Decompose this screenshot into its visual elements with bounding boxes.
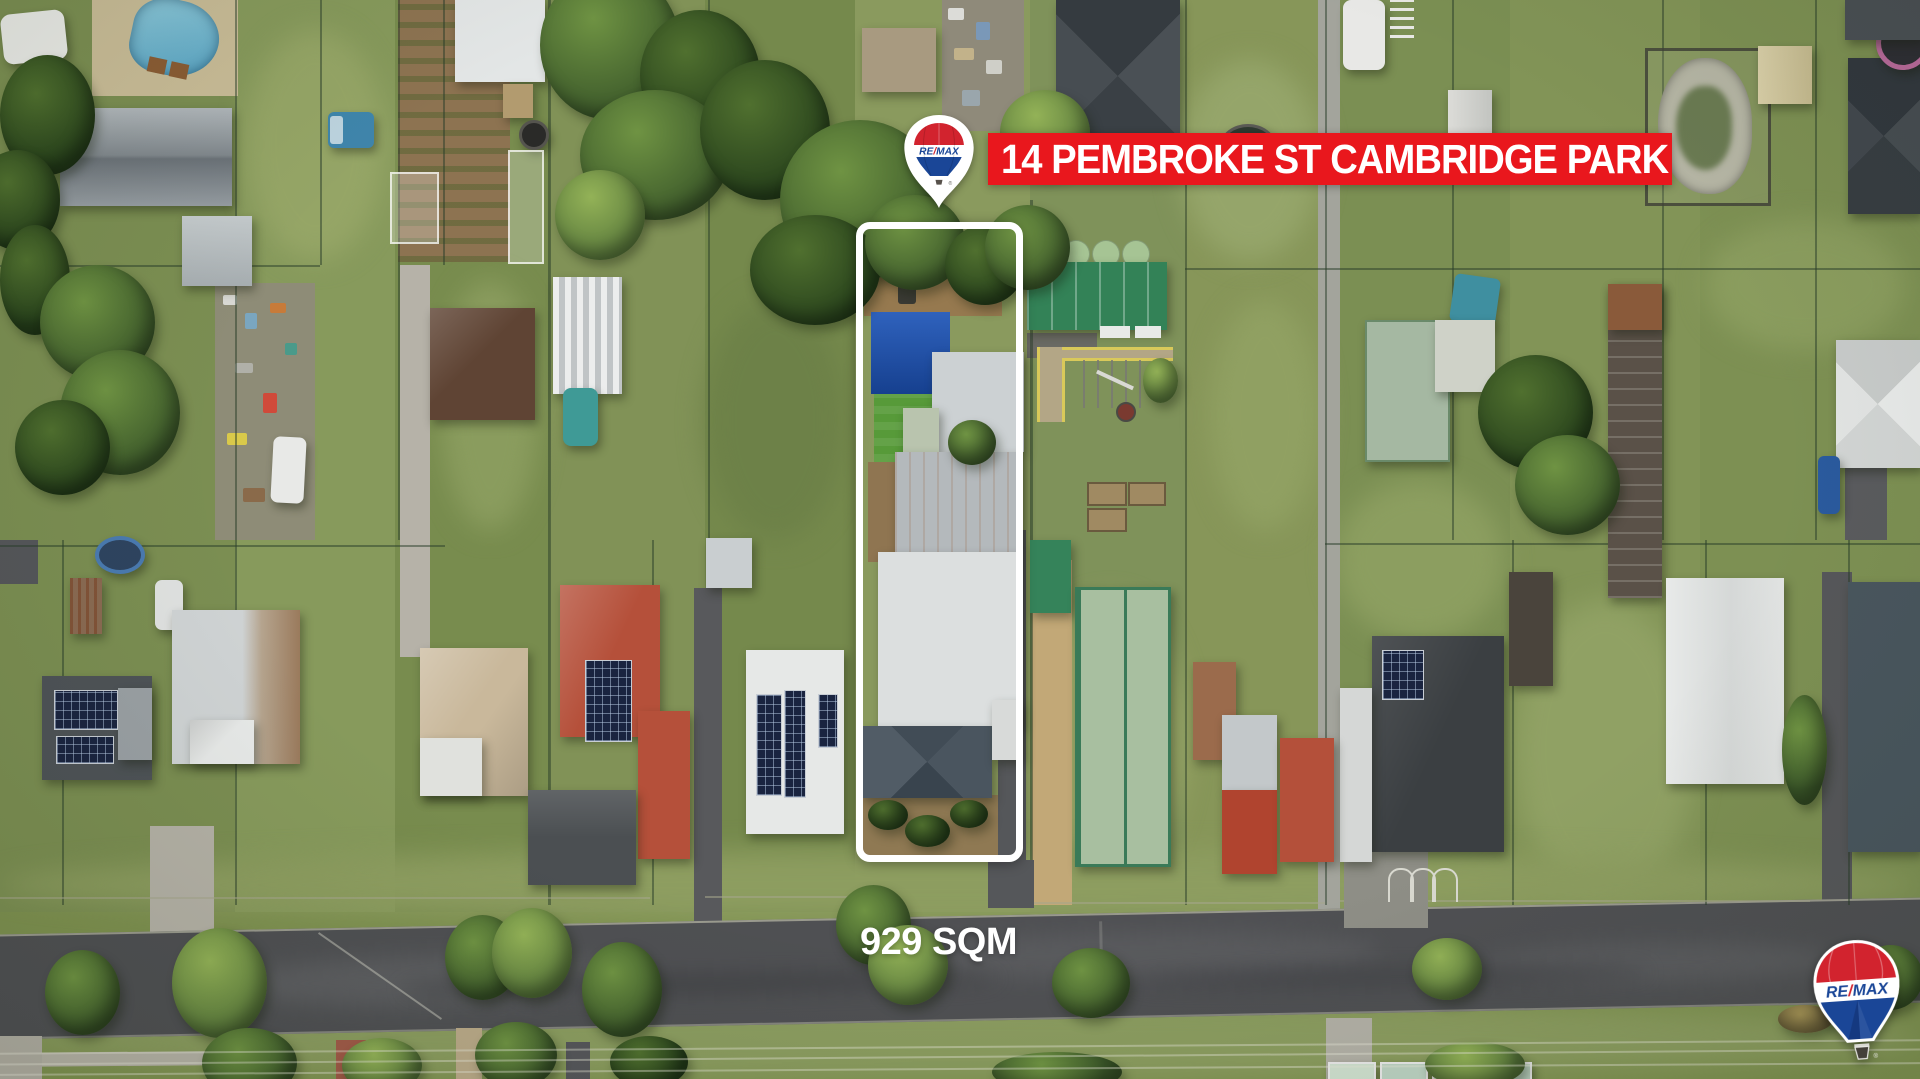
aviary-rust-roof bbox=[1608, 284, 1662, 330]
garage-roof-green bbox=[1030, 540, 1071, 613]
house-roof-white bbox=[455, 0, 545, 82]
roof-dark-narrow bbox=[1509, 572, 1553, 686]
svg-text:®: ® bbox=[1873, 1053, 1878, 1060]
house-roof-white-metal bbox=[1666, 578, 1784, 784]
garden-path-yellow-edge bbox=[1062, 350, 1173, 358]
junk-item bbox=[227, 433, 247, 445]
aerial-photo: RE/MAX ® 14 PEMBROKE ST CAMBRIDGE PARK 9… bbox=[0, 0, 1920, 1079]
svg-text:®: ® bbox=[949, 180, 953, 187]
shed-roof bbox=[503, 84, 533, 118]
van bbox=[270, 436, 306, 504]
shed-roof-tan bbox=[862, 28, 936, 92]
roof-strip-white bbox=[1340, 688, 1372, 862]
grass-patch bbox=[705, 300, 845, 540]
fence-line bbox=[398, 0, 400, 540]
junk-item bbox=[263, 393, 277, 413]
front-fence bbox=[705, 896, 855, 898]
driveway-concrete bbox=[150, 826, 214, 938]
tarp-teal bbox=[1449, 273, 1501, 327]
driveway-concrete bbox=[400, 265, 430, 657]
grass-patch bbox=[1335, 480, 1505, 640]
barn-roof-red bbox=[1222, 790, 1277, 874]
garage-roof-white bbox=[420, 738, 482, 796]
fence-line bbox=[1452, 0, 1454, 540]
junk-item bbox=[285, 343, 297, 355]
junk-item bbox=[270, 303, 286, 313]
garden-bed bbox=[1087, 482, 1127, 506]
ladder-white bbox=[1390, 0, 1414, 38]
playground-frames bbox=[1083, 360, 1141, 408]
shed-roof-silver bbox=[182, 216, 252, 286]
driveway-asphalt bbox=[694, 588, 722, 958]
fence-line bbox=[235, 0, 237, 905]
barn-roof-silver bbox=[1222, 715, 1277, 790]
water-tank bbox=[519, 120, 549, 150]
fence-line bbox=[443, 0, 445, 265]
remax-balloon-logo: RE/MAX ® bbox=[1801, 935, 1914, 1076]
junk-item bbox=[245, 313, 257, 329]
fire-pit bbox=[1116, 402, 1136, 422]
awning-white bbox=[1100, 326, 1130, 338]
tree bbox=[1782, 695, 1827, 805]
solar-panels bbox=[54, 690, 118, 730]
ute-cab bbox=[330, 116, 343, 144]
grass-patch bbox=[1210, 300, 1320, 530]
house-gable-white bbox=[190, 720, 254, 764]
tree bbox=[1515, 435, 1620, 535]
street-tree bbox=[1052, 948, 1130, 1018]
solar-panels bbox=[1382, 650, 1424, 700]
driveway-apron bbox=[988, 860, 1034, 908]
solar-panels bbox=[756, 694, 782, 796]
junk-item bbox=[954, 48, 974, 60]
pool-murky-water bbox=[1676, 86, 1732, 170]
roof-strip-dark bbox=[1845, 0, 1920, 40]
house-roof-bluegray bbox=[1848, 582, 1920, 852]
tree bbox=[15, 400, 110, 495]
hoop-fence bbox=[1432, 868, 1458, 902]
solar-panels bbox=[585, 660, 632, 742]
tree bbox=[555, 170, 645, 260]
junk-item bbox=[962, 90, 980, 106]
address-banner-text: 14 PEMBROKE ST CAMBRIDGE PARK bbox=[1001, 136, 1668, 183]
junk-item bbox=[948, 8, 964, 20]
address-banner: 14 PEMBROKE ST CAMBRIDGE PARK bbox=[988, 133, 1672, 185]
junk-item bbox=[976, 22, 990, 40]
solar-panels bbox=[818, 694, 838, 748]
house-roof-white-hip bbox=[1836, 340, 1920, 468]
trampoline bbox=[95, 536, 145, 574]
house-roof-gray-gable bbox=[528, 790, 636, 885]
property-boundary-outline bbox=[856, 222, 1023, 862]
house-wing-red-tile bbox=[638, 711, 690, 859]
caravan bbox=[1343, 0, 1385, 70]
house-roof-brown-tile bbox=[430, 308, 535, 420]
garage-roof-silver bbox=[706, 538, 752, 588]
garden-bed bbox=[1128, 482, 1166, 506]
street-tree bbox=[45, 950, 120, 1035]
shed-roof-rusty bbox=[70, 578, 102, 634]
concrete-pad bbox=[0, 1036, 42, 1079]
solar-panels bbox=[784, 690, 806, 798]
swimming-pool-small bbox=[563, 388, 598, 446]
svg-text:RE/MAX: RE/MAX bbox=[919, 147, 960, 158]
fence-line bbox=[0, 545, 445, 547]
pool-enclosure bbox=[553, 277, 622, 394]
garden-path-yellow-edge bbox=[1040, 347, 1062, 422]
garden-net-frame bbox=[390, 172, 439, 244]
fence-line bbox=[320, 0, 322, 265]
street-tree bbox=[1412, 938, 1482, 1000]
junk-item bbox=[235, 363, 253, 373]
house-roof-dark-hip bbox=[1848, 58, 1920, 214]
fence-line bbox=[1815, 0, 1817, 540]
fence-line bbox=[1185, 268, 1920, 270]
front-fence bbox=[1030, 902, 1325, 904]
house-wing-gray bbox=[118, 688, 152, 760]
junk-item bbox=[243, 488, 265, 502]
solar-panels bbox=[56, 736, 114, 764]
garden-bed bbox=[1087, 508, 1127, 532]
remax-balloon-pin-icon: RE/MAX ® bbox=[898, 112, 980, 210]
awning-white bbox=[1135, 326, 1161, 338]
area-label: 929 SQM bbox=[860, 921, 1017, 964]
street-tree bbox=[492, 908, 572, 998]
house-roof-red-tile bbox=[1280, 738, 1334, 862]
street-tree bbox=[172, 928, 267, 1038]
car-blue bbox=[1818, 456, 1840, 514]
front-fence bbox=[0, 897, 650, 899]
aviary-cages bbox=[1608, 284, 1662, 598]
house-roof-sage-green bbox=[1075, 587, 1171, 867]
shed-roof-cream bbox=[1758, 46, 1812, 104]
bush bbox=[1143, 358, 1178, 403]
grass-patch bbox=[1705, 220, 1905, 350]
garden-net-frame bbox=[508, 150, 544, 264]
junk-item bbox=[986, 60, 1002, 74]
street-tree bbox=[582, 942, 662, 1037]
street-tree bbox=[1425, 1042, 1525, 1079]
